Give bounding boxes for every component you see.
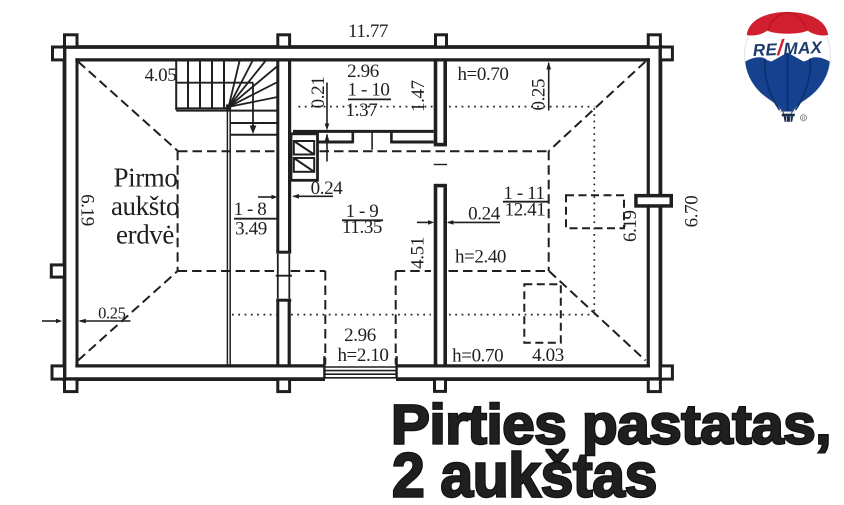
svg-text:2.96: 2.96 <box>344 325 376 346</box>
svg-text:R: R <box>802 116 806 122</box>
svg-text:12.41: 12.41 <box>505 200 546 221</box>
svg-text:4.03: 4.03 <box>532 345 564 366</box>
svg-text:0.25: 0.25 <box>528 79 549 111</box>
svg-text:h=0.70: h=0.70 <box>457 64 508 85</box>
svg-text:6.19: 6.19 <box>77 194 98 226</box>
svg-text:1 - 8: 1 - 8 <box>234 199 267 220</box>
svg-text:2 aukštas: 2 aukštas <box>392 442 657 505</box>
svg-text:6.19: 6.19 <box>620 210 641 242</box>
svg-text:h=2.40: h=2.40 <box>455 247 506 268</box>
svg-text:Pirmo: Pirmo <box>113 163 177 193</box>
svg-text:0.24: 0.24 <box>468 204 501 225</box>
svg-text:0.21: 0.21 <box>308 77 329 109</box>
svg-text:0.24: 0.24 <box>311 178 344 199</box>
svg-text:h=2.10: h=2.10 <box>337 345 388 366</box>
svg-text:1.47: 1.47 <box>408 80 429 112</box>
svg-text:4.51: 4.51 <box>407 237 428 269</box>
svg-text:11.35: 11.35 <box>342 217 382 238</box>
svg-text:0.25: 0.25 <box>98 304 125 323</box>
svg-text:h=0.70: h=0.70 <box>452 346 503 367</box>
svg-text:3.49: 3.49 <box>235 219 267 240</box>
svg-text:1.37: 1.37 <box>346 100 378 121</box>
svg-text:1 - 10: 1 - 10 <box>348 79 390 100</box>
svg-text:aukšto: aukšto <box>111 191 179 221</box>
svg-text:6.70: 6.70 <box>681 196 702 228</box>
svg-text:11.77: 11.77 <box>348 21 388 42</box>
svg-text:erdvė: erdvė <box>116 220 174 250</box>
svg-text:4.05: 4.05 <box>145 65 177 86</box>
